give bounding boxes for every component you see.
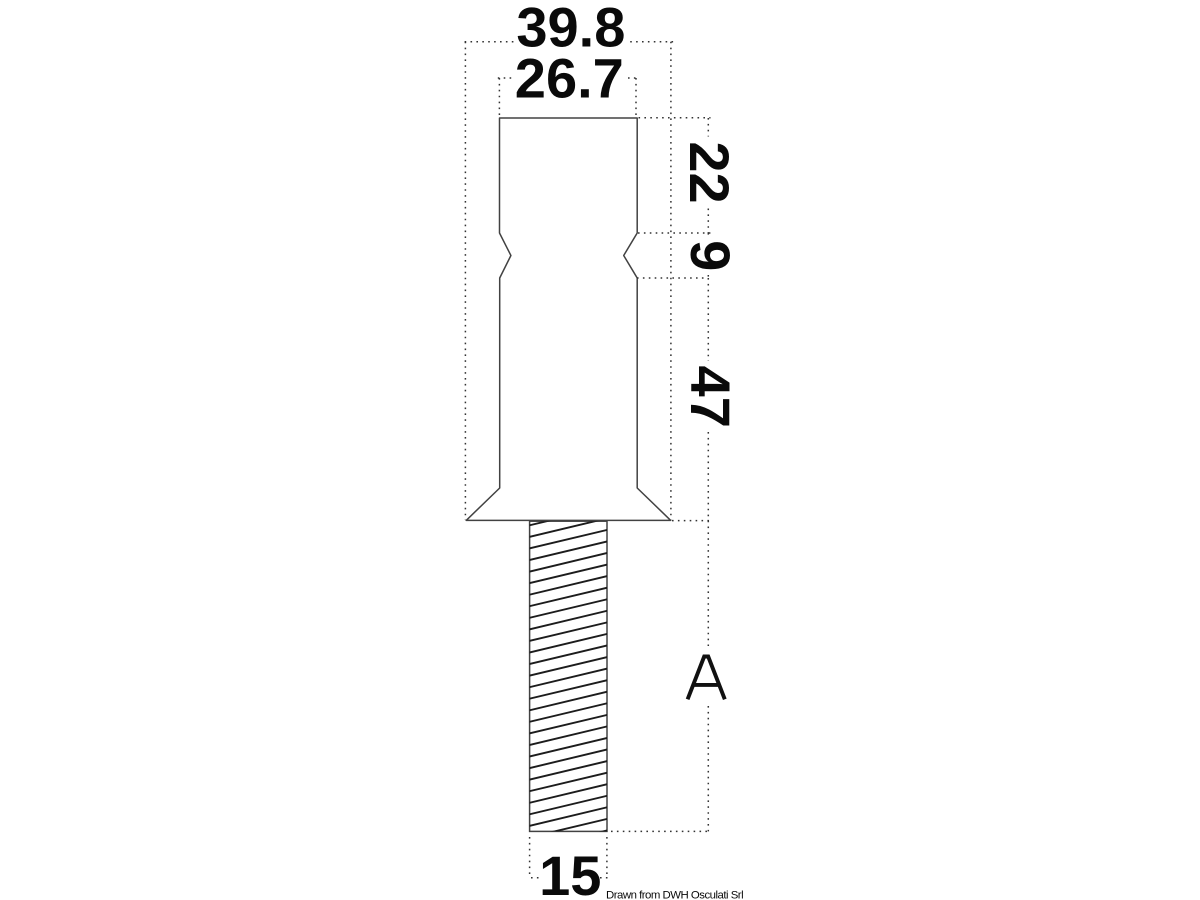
svg-text:15: 15 xyxy=(539,844,601,900)
svg-text:47: 47 xyxy=(679,366,742,428)
svg-text:Drawn from DWH Osculati Srl: Drawn from DWH Osculati Srl xyxy=(606,890,743,900)
svg-text:22: 22 xyxy=(678,141,741,203)
svg-text:9: 9 xyxy=(679,240,742,271)
svg-text:26.7: 26.7 xyxy=(515,46,624,109)
